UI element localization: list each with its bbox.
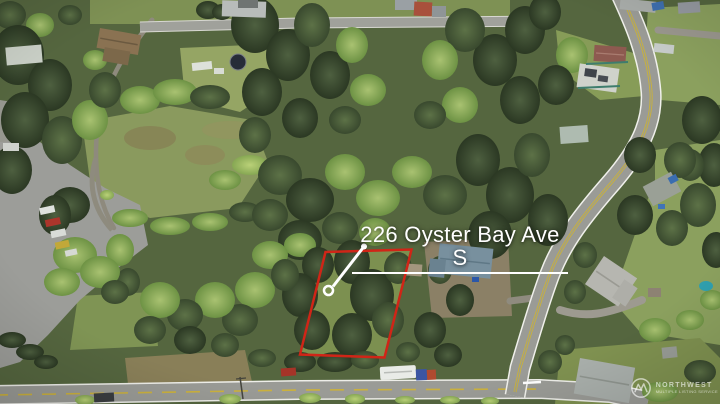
watermark: NORTHWEST MULTIPLE LISTING SERVICE (630, 377, 718, 399)
address-text: 226 Oyster Bay Ave S (352, 223, 568, 274)
aerial-scene (0, 0, 720, 404)
vignette (0, 0, 720, 404)
mountain-circle-icon (630, 377, 652, 399)
address-label: 226 Oyster Bay Ave S (352, 223, 568, 274)
aerial-photo: 226 Oyster Bay Ave S NORTHWEST MULTIPLE … (0, 0, 720, 404)
watermark-text: NORTHWEST MULTIPLE LISTING SERVICE (656, 382, 718, 395)
watermark-tagline: MULTIPLE LISTING SERVICE (656, 390, 718, 395)
